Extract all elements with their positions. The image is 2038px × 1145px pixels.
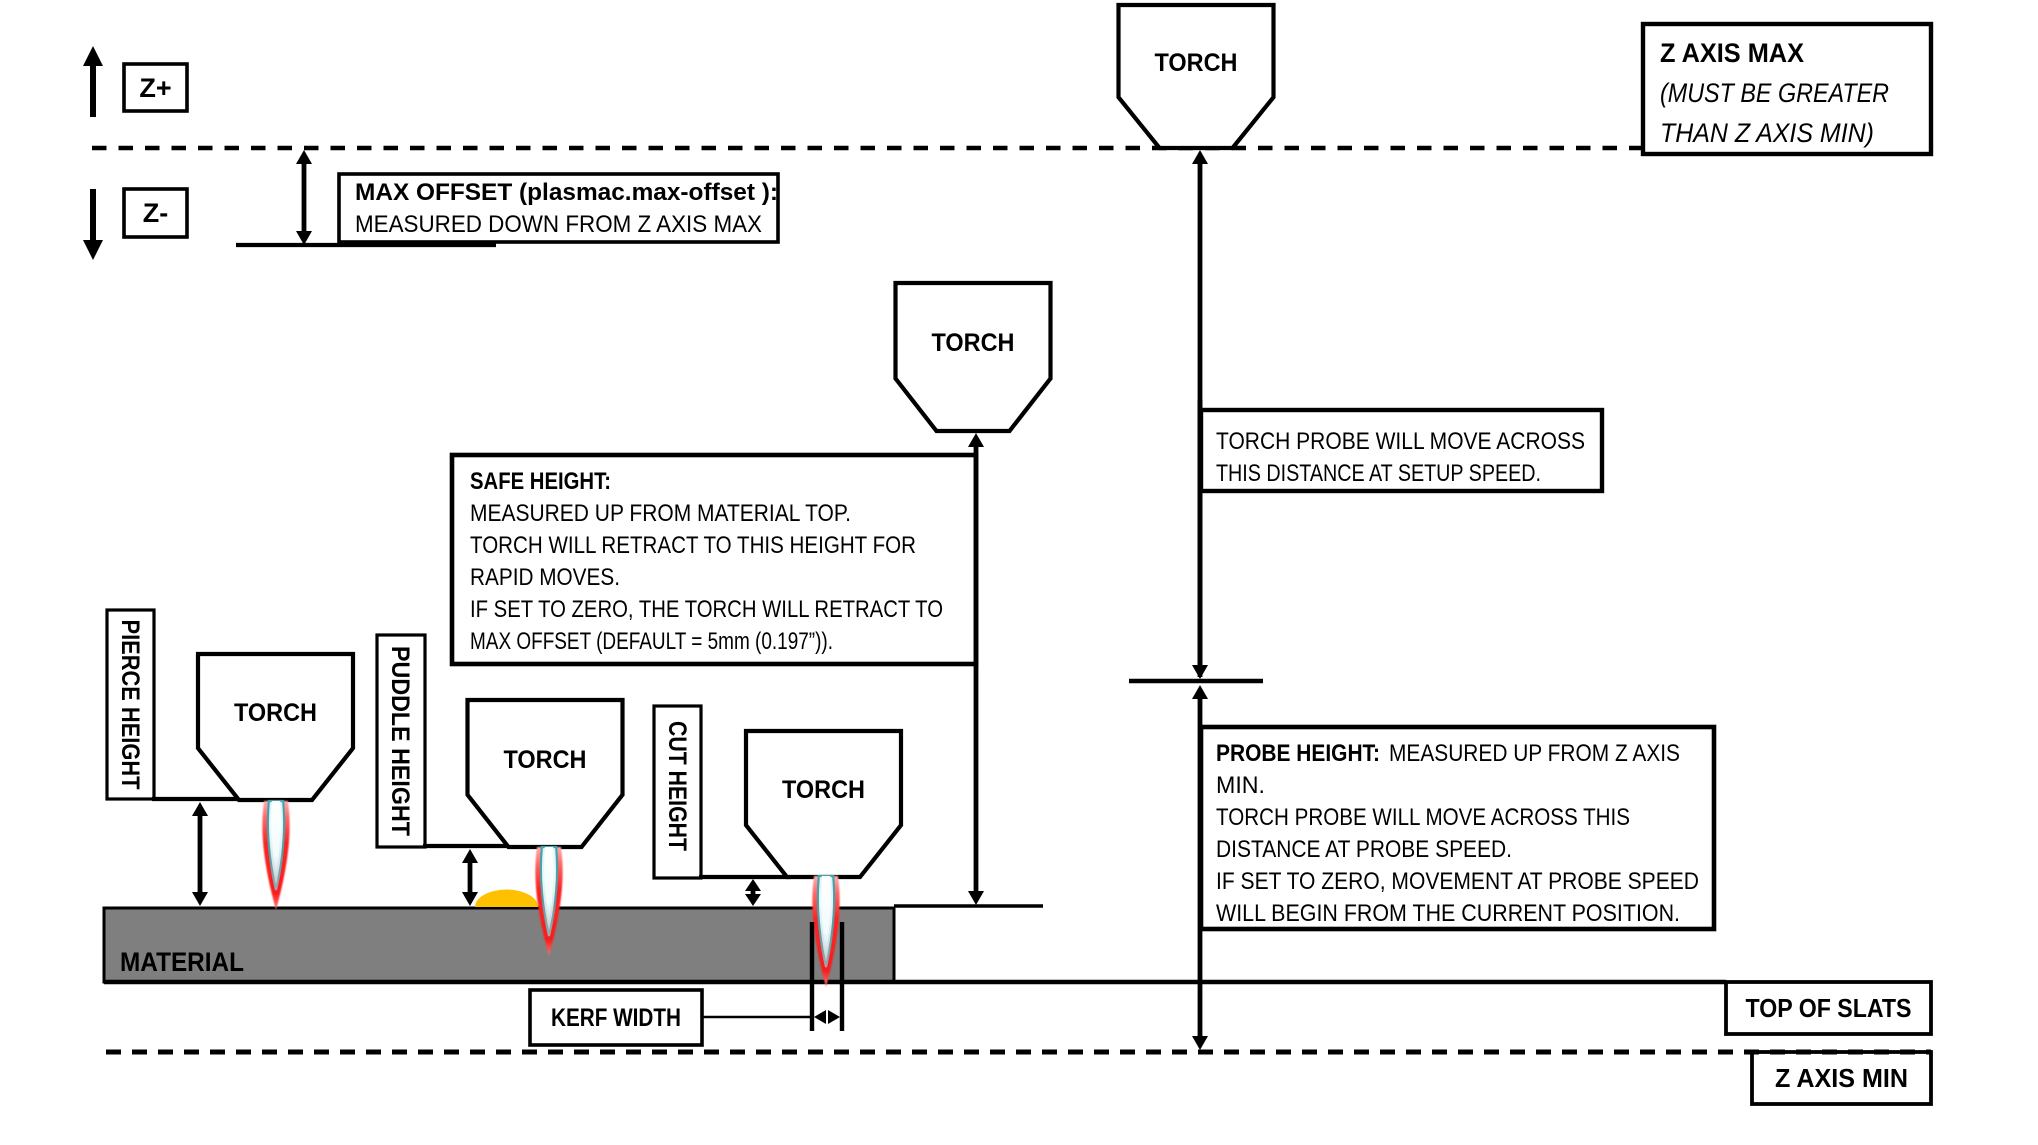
svg-text:MEASURED UP FROM Z AXIS: MEASURED UP FROM Z AXIS: [1389, 740, 1680, 767]
svg-text:MAX OFFSET (DEFAULT = 5mm (0.1: MAX OFFSET (DEFAULT = 5mm (0.197”)).: [470, 628, 833, 655]
svg-text:MEASURED DOWN FROM Z AXIS MAX: MEASURED DOWN FROM Z AXIS MAX: [355, 211, 762, 238]
svg-text:TORCH: TORCH: [1155, 49, 1238, 77]
svg-text:MEASURED UP FROM MATERIAL TOP.: MEASURED UP FROM MATERIAL TOP.: [470, 500, 851, 527]
svg-text:MATERIAL: MATERIAL: [120, 947, 244, 977]
svg-text:Z AXIS MIN: Z AXIS MIN: [1775, 1063, 1908, 1093]
svg-text:KERF WIDTH: KERF WIDTH: [551, 1004, 681, 1032]
svg-text:MAX OFFSET (plasmac.max-offset: MAX OFFSET (plasmac.max-offset ):: [355, 179, 778, 206]
svg-text:RAPID MOVES.: RAPID MOVES.: [470, 564, 620, 591]
svg-text:PIERCE HEIGHT: PIERCE HEIGHT: [116, 620, 144, 790]
svg-text:TORCH WILL RETRACT TO THIS HEI: TORCH WILL RETRACT TO THIS HEIGHT FOR: [470, 532, 916, 559]
svg-text:TORCH: TORCH: [234, 699, 317, 727]
svg-text:MIN.: MIN.: [1216, 772, 1265, 799]
svg-text:TORCH: TORCH: [932, 329, 1015, 357]
svg-text:TORCH: TORCH: [504, 746, 587, 774]
svg-text:(MUST BE GREATER: (MUST BE GREATER: [1660, 78, 1889, 108]
svg-text:TORCH PROBE WILL MOVE ACROSS: TORCH PROBE WILL MOVE ACROSS: [1216, 428, 1585, 455]
svg-text:IF SET TO ZERO, MOVEMENT AT P: IF SET TO ZERO, MOVEMENT AT PROBE SPEED: [1216, 868, 1699, 895]
svg-text:THIS DISTANCE AT SETUP SPEED.: THIS DISTANCE AT SETUP SPEED.: [1216, 460, 1541, 487]
svg-text:IF SET TO ZERO, THE TORCH WILL: IF SET TO ZERO, THE TORCH WILL RETRACT T…: [470, 596, 943, 623]
svg-text:DISTANCE AT PROBE SPEED.: DISTANCE AT PROBE SPEED.: [1216, 836, 1512, 863]
svg-text:TORCH: TORCH: [782, 776, 865, 804]
svg-text:THAN Z AXIS MIN): THAN Z AXIS MIN): [1660, 118, 1874, 148]
svg-text:Z AXIS MAX: Z AXIS MAX: [1660, 38, 1804, 68]
svg-text:WILL BEGIN FROM THE CURRENT PO: WILL BEGIN FROM THE CURRENT POSITION.: [1216, 900, 1680, 927]
svg-text:PROBE HEIGHT:: PROBE HEIGHT:: [1216, 740, 1380, 767]
svg-text:CUT HEIGHT: CUT HEIGHT: [663, 721, 691, 851]
svg-text:SAFE HEIGHT:: SAFE HEIGHT:: [470, 468, 611, 495]
svg-text:PUDDLE HEIGHT: PUDDLE HEIGHT: [386, 646, 414, 836]
svg-text:TOP OF SLATS: TOP OF SLATS: [1746, 993, 1912, 1023]
svg-text:Z-: Z-: [143, 198, 168, 228]
svg-text:TORCH PROBE WILL MOVE ACROSS T: TORCH PROBE WILL MOVE ACROSS THIS: [1216, 804, 1630, 831]
svg-text:Z+: Z+: [139, 73, 171, 103]
